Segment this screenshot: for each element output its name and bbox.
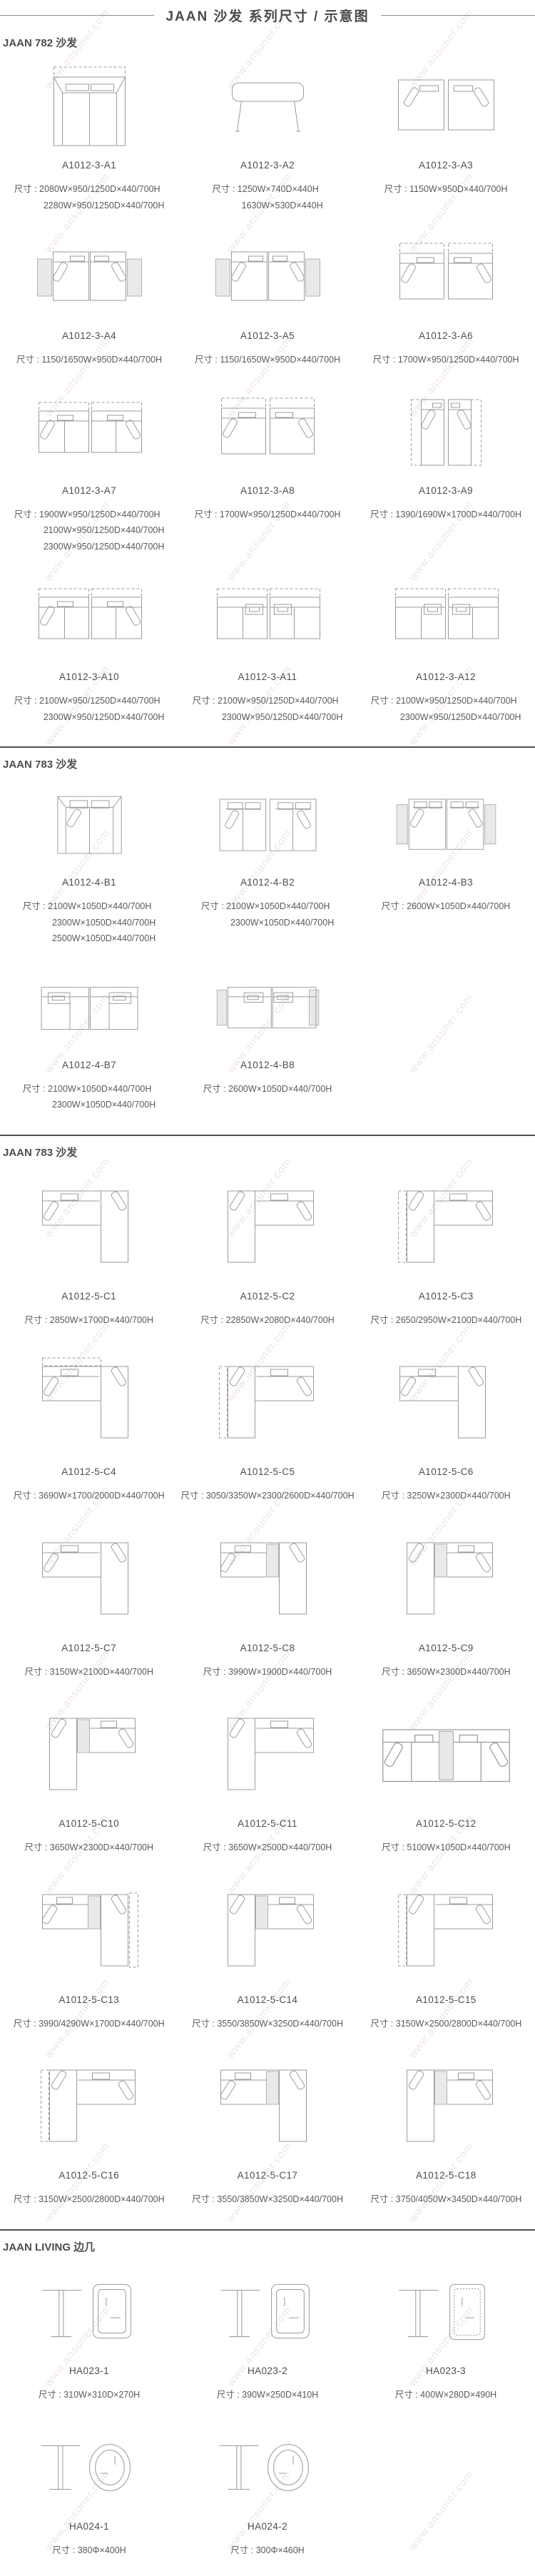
pair-gray-diagram [195, 235, 341, 320]
product-code: HA023-3 [426, 2365, 466, 2376]
product-item: HA024-2尺寸 : 300Φ×460H [178, 2410, 357, 2566]
product-code: HA023-1 [69, 2365, 109, 2376]
dimension-line: 尺寸 : 1250W×740D×440H [212, 181, 322, 198]
l-left-dashed-diagram [373, 1174, 519, 1281]
dimension-line: 尺寸 : 2100W×1050D×440/700H [201, 898, 335, 915]
product-dimensions: 尺寸 : 22850W×2080D×440/700H [200, 1312, 335, 1329]
l-right-diagram [16, 1526, 162, 1633]
dimension-line: 尺寸 : 2650/2950W×2100D×440/700H [370, 1312, 521, 1329]
l-right-gray-dashed-diagram [16, 1877, 162, 1984]
product-dimensions: 尺寸 : 390W×250D×410H [217, 2387, 318, 2403]
dimension-line: 尺寸 : 3650W×2300D×440/700H [24, 1840, 153, 1856]
dimension-line: 尺寸 : 1150/1650W×950D×440/700H [16, 352, 162, 368]
pair-dashed-diagram [195, 390, 341, 475]
dimension-line: 尺寸 : 380Φ×400H [52, 2542, 126, 2559]
dimension-line: 2300W×950/1250D×440/700H [14, 709, 165, 726]
sofa-long-gray-diagram [373, 1701, 519, 1808]
dimension-line: 尺寸 : 2100W×950/1250D×440/700H [14, 693, 165, 709]
product-dimensions: 尺寸 : 2600W×1050D×440/700H [203, 1081, 332, 1097]
l-left-dashed-diagram [16, 2053, 162, 2160]
product-code: A1012-5-C8 [240, 1643, 295, 1653]
product-dimensions: 尺寸 : 1250W×740D×440H1630W×530D×440H [212, 181, 322, 213]
product-dimensions: 尺寸 : 3150W×2100D×440/700H [24, 1664, 153, 1680]
product-dimensions: 尺寸 : 1700W×950/1250D×440/700H [195, 507, 341, 523]
dimension-line: 1630W×530D×440H [212, 198, 322, 214]
product-item: A1012-5-C14尺寸 : 3550/3850W×3250D×440/700… [178, 1863, 357, 2039]
dimension-line: 尺寸 : 1700W×950/1250D×440/700H [373, 352, 519, 368]
section-title: JAAN 782 沙发 [3, 35, 535, 50]
product-code: A1012-5-C4 [61, 1466, 116, 1477]
product-code: A1012-5-C9 [419, 1643, 474, 1653]
product-code: A1012-3-A1 [62, 160, 116, 171]
product-grid: HA023-1尺寸 : 310W×310D×270HHA023-2尺寸 : 39… [0, 2254, 535, 2566]
product-dimensions: 尺寸 : 380Φ×400H [52, 2542, 126, 2559]
catalog-page: www.ansuner.comwww.ansuner.comwww.ansune… [0, 0, 535, 2576]
product-item: A1012-5-C1尺寸 : 2850W×1700D×440/700H [0, 1160, 178, 1336]
product-item: A1012-5-C13尺寸 : 3990/4290W×1700D×440/700… [0, 1863, 178, 2039]
section: JAAN LIVING 边几HA023-1尺寸 : 310W×310D×270H… [0, 2229, 535, 2576]
dimension-line: 2300W×1050D×440/700H [201, 915, 335, 931]
product-code: HA023-2 [248, 2365, 287, 2376]
chaise-pair-diagram [16, 968, 163, 1050]
dimension-line: 尺寸 : 2100W×1050D×440/700H [23, 898, 156, 915]
product-code: A1012-4-B2 [240, 877, 295, 888]
pair-wide-dashed-diagram [16, 390, 163, 475]
page-title: JAAN 沙发 系列尺寸 / 示意图 [165, 6, 369, 25]
product-code: A1012-5-C10 [58, 1818, 119, 1829]
product-code: A1012-3-A10 [59, 671, 119, 682]
round-table-diagram [16, 2424, 163, 2511]
product-dimensions: 尺寸 : 2100W×950/1250D×440/700H2300W×950/1… [371, 693, 521, 725]
product-code: A1012-3-A5 [240, 330, 295, 341]
l-left-gray-diagram [373, 2053, 519, 2160]
product-dimensions: 尺寸 : 2100W×950/1250D×440/700H2300W×950/1… [14, 693, 165, 725]
product-item: HA023-1尺寸 : 310W×310D×270H [0, 2254, 178, 2410]
dimension-line: 2300W×950/1250D×440/700H [14, 539, 165, 555]
product-item: A1012-3-A11尺寸 : 2100W×950/1250D×440/700H… [178, 562, 357, 732]
dimension-line: 尺寸 : 3550/3850W×3250D×440/700H [192, 2016, 343, 2032]
product-dimensions: 尺寸 : 1700W×950/1250D×440/700H [373, 352, 519, 368]
pair-gray-diagram [16, 235, 163, 320]
product-grid: A1012-3-A1尺寸 : 2080W×950/1250D×440/700H2… [0, 50, 535, 732]
section-title: JAAN 783 沙发 [3, 1145, 535, 1160]
product-dimensions: 尺寸 : 3650W×2300D×440/700H [24, 1840, 153, 1856]
product-dimensions: 尺寸 : 3650W×2500D×440/700H [203, 1840, 332, 1856]
product-item: A1012-5-C2尺寸 : 22850W×2080D×440/700H [178, 1160, 357, 1336]
product-code: A1012-3-A12 [416, 671, 476, 682]
dimension-line: 2280W×950/1250D×440/700H [14, 198, 165, 214]
dimension-line: 尺寸 : 1390/1690W×1700D×440/700H [370, 507, 521, 523]
dimension-line: 尺寸 : 3150W×2100D×440/700H [24, 1664, 153, 1680]
section: JAAN 782 沙发A1012-3-A1尺寸 : 2080W×950/1250… [0, 35, 535, 742]
l-right-gray-diagram [194, 1526, 340, 1633]
l-left-dashed-diagram [194, 1349, 340, 1456]
sofa-front-diagram [16, 64, 163, 150]
dimension-line: 尺寸 : 3650W×2300D×440/700H [382, 1664, 511, 1680]
product-code: A1012-5-C7 [61, 1643, 116, 1653]
product-item: A1012-3-A5尺寸 : 1150/1650W×950D×440/700H [178, 220, 357, 375]
product-item: A1012-5-C9尺寸 : 3650W×2300D×440/700H [357, 1511, 535, 1688]
dimension-line: 尺寸 : 2080W×950/1250D×440/700H [14, 181, 165, 198]
product-item: A1012-5-C5尺寸 : 3050/3350W×2300/2600D×440… [178, 1335, 357, 1511]
dimension-line: 2300W×1050D×440/700H [23, 1097, 156, 1113]
l-left-diagram [194, 1701, 340, 1808]
section: JAAN 783 沙发A1012-5-C1尺寸 : 2850W×1700D×44… [0, 1135, 535, 2225]
pair-corner-diagram [373, 64, 519, 150]
dimension-line: 尺寸 : 3690W×1700/2000D×440/700H [14, 1488, 165, 1504]
product-dimensions: 尺寸 : 3990W×1900D×440/700H [203, 1664, 332, 1680]
l-left-diagram [194, 1174, 340, 1281]
dimension-line: 2300W×950/1250D×440/700H [193, 709, 343, 726]
product-code: A1012-3-A9 [419, 485, 473, 496]
dimension-line: 尺寸 : 3150W×2500/2800D×440/700H [14, 2191, 165, 2208]
dimension-line: 尺寸 : 3250W×2300D×440/700H [382, 1488, 511, 1504]
dimension-line: 2100W×950/1250D×440/700H [14, 522, 165, 539]
product-code: A1012-4-B3 [419, 877, 473, 888]
product-code: A1012-5-C2 [240, 1291, 295, 1302]
product-code: A1012-3-A7 [62, 485, 116, 496]
side-table-diagram [195, 2268, 341, 2356]
l-left-dashed-diagram [373, 1877, 519, 1984]
product-code: A1012-3-A8 [240, 485, 295, 496]
l-right-diagram [373, 1349, 519, 1456]
product-item: A1012-5-C8尺寸 : 3990W×1900D×440/700H [178, 1511, 357, 1688]
product-dimensions: 尺寸 : 1390/1690W×1700D×440/700H [370, 507, 521, 523]
product-dimensions: 尺寸 : 1900W×950/1250D×440/700H2100W×950/1… [14, 507, 165, 555]
product-code: A1012-5-C13 [58, 1994, 119, 2005]
l-right-dashed-diagram [16, 1349, 162, 1456]
product-item: A1012-5-C4尺寸 : 3690W×1700/2000D×440/700H [0, 1335, 178, 1511]
product-code: A1012-3-A2 [240, 160, 295, 171]
header-rule-left [0, 15, 154, 16]
product-item: A1012-4-B7尺寸 : 2100W×1050D×440/700H2300W… [0, 954, 178, 1120]
product-code: A1012-5-C17 [238, 2170, 298, 2181]
product-code: A1012-3-A4 [62, 330, 116, 341]
product-grid: A1012-4-B1尺寸 : 2100W×1050D×440/700H2300W… [0, 771, 535, 1120]
product-code: A1012-5-C5 [240, 1466, 295, 1477]
product-item: A1012-4-B2尺寸 : 2100W×1050D×440/700H2300W… [178, 771, 357, 954]
pair-narrow-dashed-diagram [373, 390, 519, 475]
product-dimensions: 尺寸 : 3150W×2500/2800D×440/700H [14, 2191, 165, 2208]
product-item: A1012-3-A6尺寸 : 1700W×950/1250D×440/700H [357, 220, 535, 375]
dimension-line: 尺寸 : 3550/3850W×3250D×440/700H [192, 2191, 343, 2208]
dimension-line: 2300W×1050D×440/700H [23, 915, 156, 931]
product-item: A1012-3-A3尺寸 : 1150W×950D×440/700H [357, 50, 535, 220]
product-dimensions: 尺寸 : 3650W×2300D×440/700H [382, 1664, 511, 1680]
product-item: A1012-5-C7尺寸 : 3150W×2100D×440/700H [0, 1511, 178, 1688]
dimension-line: 尺寸 : 1700W×950/1250D×440/700H [195, 507, 341, 523]
product-code: A1012-5-C18 [416, 2170, 477, 2181]
product-item: A1012-4-B1尺寸 : 2100W×1050D×440/700H2300W… [0, 771, 178, 954]
product-code: A1012-5-C15 [416, 1994, 477, 2005]
product-code: A1012-5-C14 [238, 1994, 298, 2005]
product-item: A1012-5-C10尺寸 : 3650W×2300D×440/700H [0, 1687, 178, 1863]
product-code: A1012-4-B7 [62, 1060, 116, 1070]
product-item: A1012-3-A8尺寸 : 1700W×950/1250D×440/700H [178, 375, 357, 562]
product-item: A1012-3-A12尺寸 : 2100W×950/1250D×440/700H… [357, 562, 535, 732]
dimension-line: 尺寸 : 3750/4050W×3450D×440/700H [370, 2191, 521, 2208]
product-item: A1012-4-B8尺寸 : 2600W×1050D×440/700H [178, 954, 357, 1120]
product-code: A1012-5-C6 [419, 1466, 474, 1477]
section: JAAN 783 沙发A1012-4-B1尺寸 : 2100W×1050D×44… [0, 746, 535, 1130]
product-item: A1012-5-C18尺寸 : 3750/4050W×3450D×440/700… [357, 2039, 535, 2215]
dimension-line: 尺寸 : 5100W×1050D×440/700H [382, 1840, 511, 1856]
product-dimensions: 尺寸 : 3050/3350W×2300/2600D×440/700H [180, 1488, 354, 1504]
product-code: A1012-3-A3 [419, 160, 473, 171]
product-dimensions: 尺寸 : 2600W×1050D×440/700H [382, 898, 511, 915]
product-item: A1012-5-C16尺寸 : 3150W×2500/2800D×440/700… [0, 2039, 178, 2215]
product-item: HA023-3尺寸 : 400W×280D×490H [357, 2254, 535, 2410]
product-dimensions: 尺寸 : 1150/1650W×950D×440/700H [16, 352, 162, 368]
dimension-line: 尺寸 : 390W×250D×410H [217, 2387, 318, 2403]
product-item: A1012-3-A4尺寸 : 1150/1650W×950D×440/700H [0, 220, 178, 375]
side-table-dotted-diagram [373, 2268, 519, 2356]
round-table-diagram [195, 2424, 341, 2511]
product-dimensions: 尺寸 : 2100W×950/1250D×440/700H2300W×950/1… [193, 693, 343, 725]
product-code: A1012-5-C1 [61, 1291, 116, 1302]
pair-dashed-diagram [373, 235, 519, 320]
dimension-line: 尺寸 : 3990/4290W×1700D×440/700H [14, 2016, 165, 2032]
product-item: A1012-5-C3尺寸 : 2650/2950W×2100D×440/700H [357, 1160, 535, 1336]
dimension-line: 尺寸 : 2600W×1050D×440/700H [382, 898, 511, 915]
product-item: A1012-3-A1尺寸 : 2080W×950/1250D×440/700H2… [0, 50, 178, 220]
header-rule-right [381, 15, 535, 16]
product-dimensions: 尺寸 : 3550/3850W×3250D×440/700H [192, 2016, 343, 2032]
product-item: A1012-3-A9尺寸 : 1390/1690W×1700D×440/700H [357, 375, 535, 562]
product-item: A1012-3-A2尺寸 : 1250W×740D×440H1630W×530D… [178, 50, 357, 220]
product-code: A1012-3-A11 [238, 671, 297, 682]
product-dimensions: 尺寸 : 1150/1650W×950D×440/700H [195, 352, 340, 368]
bench-diagram [195, 64, 341, 150]
product-dimensions: 尺寸 : 310W×310D×270H [39, 2387, 140, 2403]
product-item: A1012-5-C17尺寸 : 3550/3850W×3250D×440/700… [178, 2039, 357, 2215]
product-dimensions: 尺寸 : 3150W×2500/2800D×440/700H [370, 2016, 521, 2032]
dimension-line: 尺寸 : 2600W×1050D×440/700H [203, 1081, 332, 1097]
dimension-line: 尺寸 : 3990W×1900D×440/700H [203, 1664, 332, 1680]
product-dimensions: 尺寸 : 3250W×2300D×440/700H [382, 1488, 511, 1504]
product-code: A1012-3-A6 [419, 330, 473, 341]
product-item: A1012-3-A7尺寸 : 1900W×950/1250D×440/700H2… [0, 375, 178, 562]
product-dimensions: 尺寸 : 400W×280D×490H [395, 2387, 496, 2403]
product-item: A1012-5-C6尺寸 : 3250W×2300D×440/700H [357, 1335, 535, 1511]
dimension-line: 尺寸 : 2100W×950/1250D×440/700H [371, 693, 521, 709]
dimension-line: 尺寸 : 400W×280D×490H [395, 2387, 496, 2403]
product-dimensions: 尺寸 : 300Φ×460H [230, 2542, 304, 2559]
product-item: A1012-4-B3尺寸 : 2600W×1050D×440/700H [357, 771, 535, 954]
product-code: A1012-5-C16 [58, 2170, 119, 2181]
product-code: HA024-1 [69, 2521, 109, 2532]
dimension-line: 尺寸 : 3650W×2500D×440/700H [203, 1840, 332, 1856]
product-code: A1012-5-C3 [419, 1291, 474, 1302]
product-dimensions: 尺寸 : 1150W×950D×440/700H [384, 181, 508, 198]
catalog-sections: JAAN 782 沙发A1012-3-A1尺寸 : 2080W×950/1250… [0, 35, 535, 2576]
product-item: A1012-5-C12尺寸 : 5100W×1050D×440/700H [357, 1687, 535, 1863]
dimension-line: 尺寸 : 2850W×1700D×440/700H [24, 1312, 153, 1329]
product-code: A1012-5-C12 [416, 1818, 477, 1829]
dimension-line: 尺寸 : 300Φ×460H [230, 2542, 304, 2559]
dimension-line: 2300W×950/1250D×440/700H [371, 709, 521, 726]
dimension-line: 尺寸 : 3150W×2500/2800D×440/700H [370, 2016, 521, 2032]
product-dimensions: 尺寸 : 2100W×1050D×440/700H2300W×1050D×440… [201, 898, 335, 930]
dimension-line: 尺寸 : 3050/3350W×2300/2600D×440/700H [180, 1488, 354, 1504]
page-header: JAAN 沙发 系列尺寸 / 示意图 [0, 0, 535, 26]
product-item: HA024-1尺寸 : 380Φ×400H [0, 2410, 178, 2566]
dimension-line: 尺寸 : 310W×310D×270H [39, 2387, 140, 2403]
product-item: A1012-5-C15尺寸 : 3150W×2500/2800D×440/700… [357, 1863, 535, 2039]
product-item: A1012-5-C11尺寸 : 3650W×2500D×440/700H [178, 1687, 357, 1863]
product-code: A1012-5-C11 [238, 1818, 297, 1829]
sofa-top-2-diagram [195, 786, 341, 867]
section-title: JAAN 783 沙发 [3, 756, 535, 771]
product-dimensions: 尺寸 : 3690W×1700/2000D×440/700H [14, 1488, 165, 1504]
pair-wide-dashed2-diagram [195, 576, 341, 661]
dimension-line: 尺寸 : 1900W×950/1250D×440/700H [14, 507, 165, 523]
l-right-diagram [16, 1174, 162, 1281]
sofa-top-2-gray-diagram [373, 786, 519, 867]
product-dimensions: 尺寸 : 2100W×1050D×440/700H2300W×1050D×440… [23, 1081, 156, 1113]
product-dimensions: 尺寸 : 5100W×1050D×440/700H [382, 1840, 511, 1856]
l-left-gray-diagram [373, 1526, 519, 1633]
product-code: HA024-2 [248, 2521, 287, 2532]
catalog-content: JAAN 沙发 系列尺寸 / 示意图 JAAN 782 沙发A1012-3-A1… [0, 0, 535, 2576]
chaise-pair-gray-diagram [195, 968, 341, 1050]
l-left-gray-diagram [16, 1701, 162, 1808]
dimension-line: 尺寸 : 2100W×950/1250D×440/700H [193, 693, 343, 709]
sofa-top-1-diagram [16, 786, 163, 867]
dimension-line: 2500W×1050D×440/700H [23, 930, 156, 947]
product-dimensions: 尺寸 : 3750/4050W×3450D×440/700H [370, 2191, 521, 2208]
product-item: A1012-3-A10尺寸 : 2100W×950/1250D×440/700H… [0, 562, 178, 732]
product-dimensions: 尺寸 : 2650/2950W×2100D×440/700H [370, 1312, 521, 1329]
l-right-gray-diagram [194, 2053, 340, 2160]
l-left-gray-diagram [194, 1877, 340, 1984]
product-code: A1012-4-B8 [240, 1060, 295, 1070]
product-dimensions: 尺寸 : 3990/4290W×1700D×440/700H [14, 2016, 165, 2032]
dimension-line: 尺寸 : 1150W×950D×440/700H [384, 181, 508, 198]
pair-wide-dashed-diagram [16, 576, 163, 661]
product-code: A1012-4-B1 [62, 877, 116, 888]
section-title: JAAN LIVING 边几 [3, 2239, 535, 2254]
product-dimensions: 尺寸 : 2080W×950/1250D×440/700H2280W×950/1… [14, 181, 165, 213]
product-dimensions: 尺寸 : 2100W×1050D×440/700H2300W×1050D×440… [23, 898, 156, 947]
pair-wide-dashed2-diagram [373, 576, 519, 661]
product-item: HA023-2尺寸 : 390W×250D×410H [178, 2254, 357, 2410]
dimension-line: 尺寸 : 2100W×1050D×440/700H [23, 1081, 156, 1097]
dimension-line: 尺寸 : 22850W×2080D×440/700H [200, 1312, 335, 1329]
product-grid: A1012-5-C1尺寸 : 2850W×1700D×440/700HA1012… [0, 1160, 535, 2215]
product-dimensions: 尺寸 : 2850W×1700D×440/700H [24, 1312, 153, 1329]
product-dimensions: 尺寸 : 3550/3850W×3250D×440/700H [192, 2191, 343, 2208]
side-table-diagram [16, 2268, 163, 2356]
dimension-line: 尺寸 : 1150/1650W×950D×440/700H [195, 352, 340, 368]
